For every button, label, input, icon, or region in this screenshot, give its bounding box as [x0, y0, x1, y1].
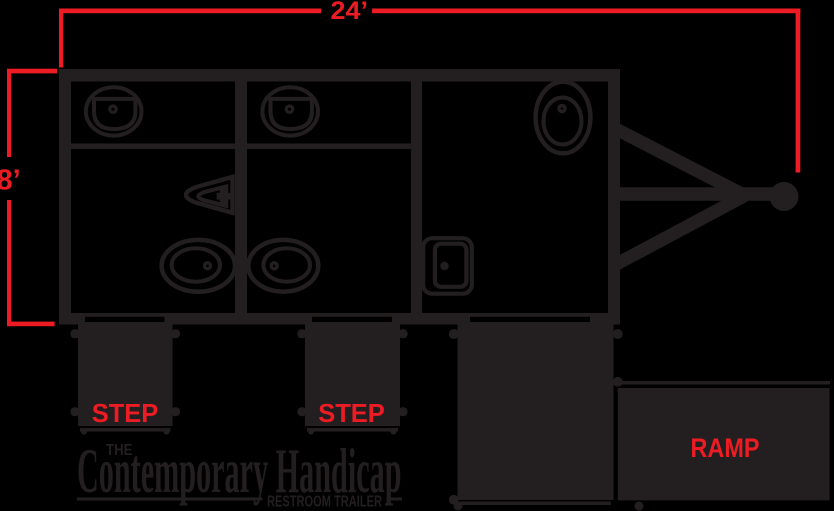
- svg-text:STEP: STEP: [318, 400, 385, 428]
- svg-text:8’: 8’: [0, 164, 21, 196]
- svg-text:24’: 24’: [331, 0, 369, 25]
- svg-text:RESTROOM TRAILER: RESTROOM TRAILER: [267, 494, 382, 511]
- svg-text:STEP: STEP: [92, 400, 159, 428]
- svg-text:RAMP: RAMP: [691, 433, 760, 463]
